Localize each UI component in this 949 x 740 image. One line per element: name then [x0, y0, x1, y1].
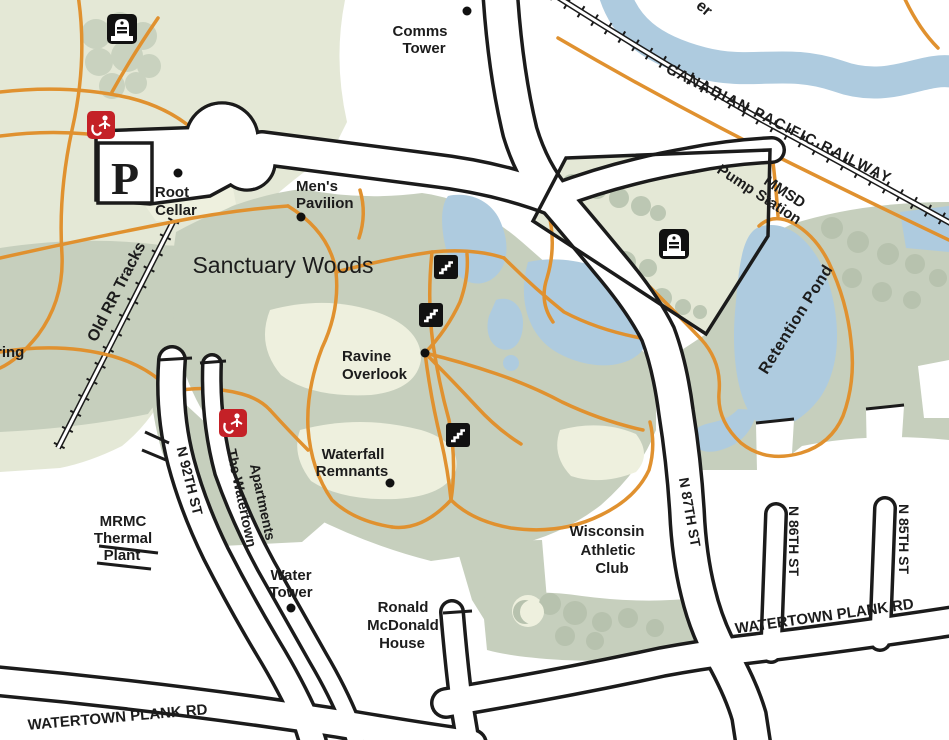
stairs-icon: [446, 423, 470, 447]
stairs-icon: [434, 255, 458, 279]
label-n-85th-st: N 85TH ST: [896, 504, 912, 574]
label-ronald-mcdonald-house-3: House: [379, 635, 425, 652]
label-root-cellar-2: Cellar: [155, 202, 197, 219]
poi-dot-comms-tower: [463, 7, 472, 16]
label-ravine-overlook: Ravine: [342, 348, 391, 365]
label-wisconsin-athletic-club-2: Athletic: [580, 542, 635, 559]
label-comms-tower-2: Tower: [402, 40, 445, 57]
map-canvas: P: [0, 0, 949, 740]
label-water-tower-2: Tower: [269, 584, 312, 601]
label-ravine-overlook-2: Overlook: [342, 366, 408, 383]
label-mrmc-thermal-plant: MRMC: [100, 513, 147, 530]
monument-icon: [107, 14, 137, 44]
litter-disposal-icon: [219, 409, 247, 437]
label-waterfall-remnants-2: Remnants: [316, 463, 389, 480]
poi-dot-root-cellar: [174, 169, 183, 178]
label-ronald-mcdonald-house: Ronald: [378, 599, 429, 616]
label-comms-tower: Comms: [392, 23, 447, 40]
label-ronald-mcdonald-house-2: McDonald: [367, 617, 439, 634]
parking-p-letter: P: [111, 153, 139, 204]
label-root-cellar: Root: [155, 184, 189, 201]
stairs-icon: [419, 303, 443, 327]
label-water-tower: Water: [270, 567, 311, 584]
label-sanctuary-woods: Sanctuary Woods: [192, 252, 373, 278]
label-wisconsin-athletic-club-3: Club: [595, 560, 628, 577]
label-mrmc-thermal-plant-2: Thermal: [94, 530, 152, 547]
label-wisconsin-athletic-club: Wisconsin: [570, 523, 645, 540]
poi-dot-mens-pavilion: [297, 213, 306, 222]
label-mens-pavilion-2: Pavilion: [296, 195, 354, 212]
poi-dot-ravine-overlook: [421, 349, 430, 358]
label-mens-pavilion: Men's: [296, 178, 338, 195]
label-mrmc-thermal-plant-3: Plant: [104, 547, 141, 564]
label-n-86th-st: N 86TH ST: [786, 506, 802, 576]
litter-disposal-icon: [87, 111, 115, 139]
poi-dot-water-tower: [287, 604, 296, 613]
label-waterfall-remnants: Waterfall: [322, 446, 385, 463]
parking-p-icon: P: [98, 143, 152, 204]
label-spring-partial: ring: [0, 344, 24, 361]
monument-icon: [659, 229, 689, 259]
